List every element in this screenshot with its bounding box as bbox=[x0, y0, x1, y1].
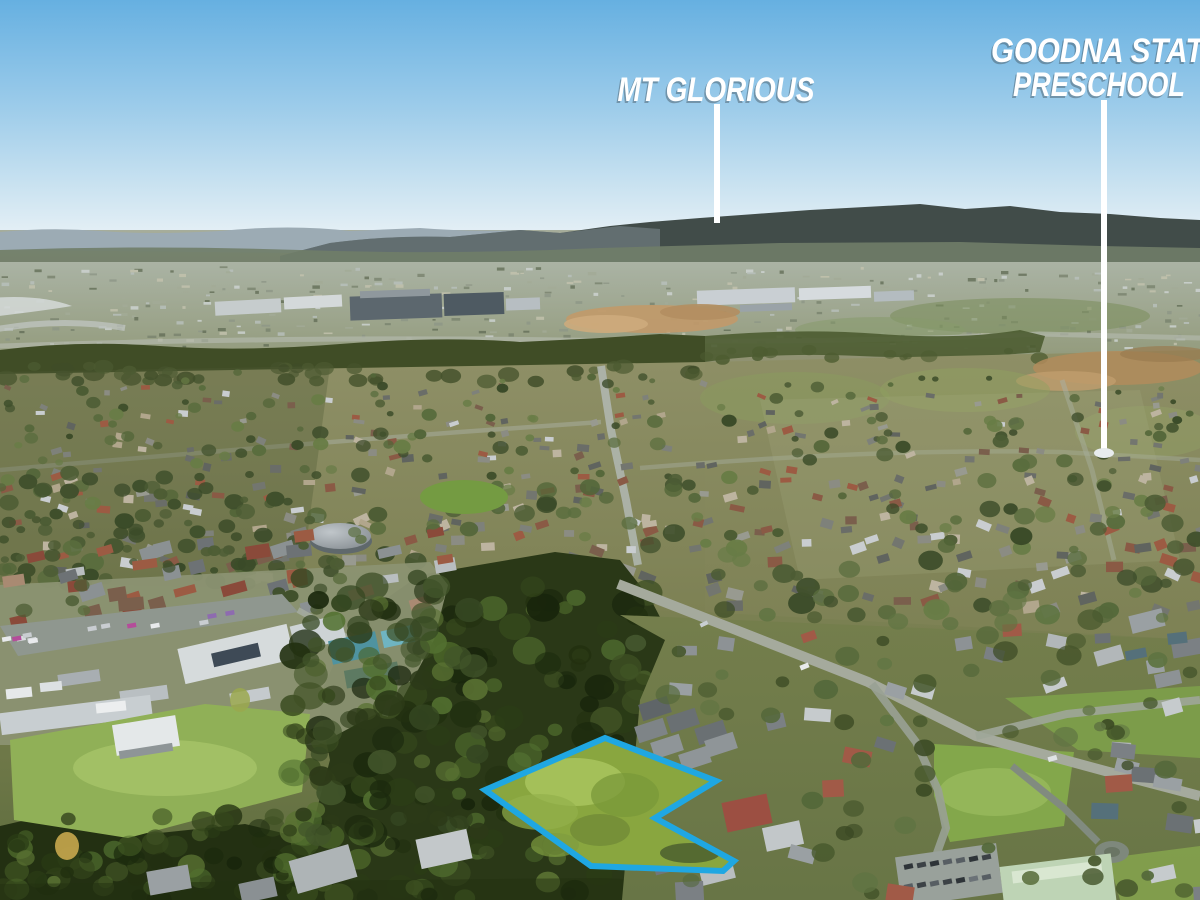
svg-text:PRESCHOOL: PRESCHOOL bbox=[1013, 66, 1185, 104]
svg-text:MT GLORIOUS: MT GLORIOUS bbox=[618, 71, 815, 109]
svg-text:GOODNA STATE: GOODNA STATE bbox=[991, 32, 1200, 70]
